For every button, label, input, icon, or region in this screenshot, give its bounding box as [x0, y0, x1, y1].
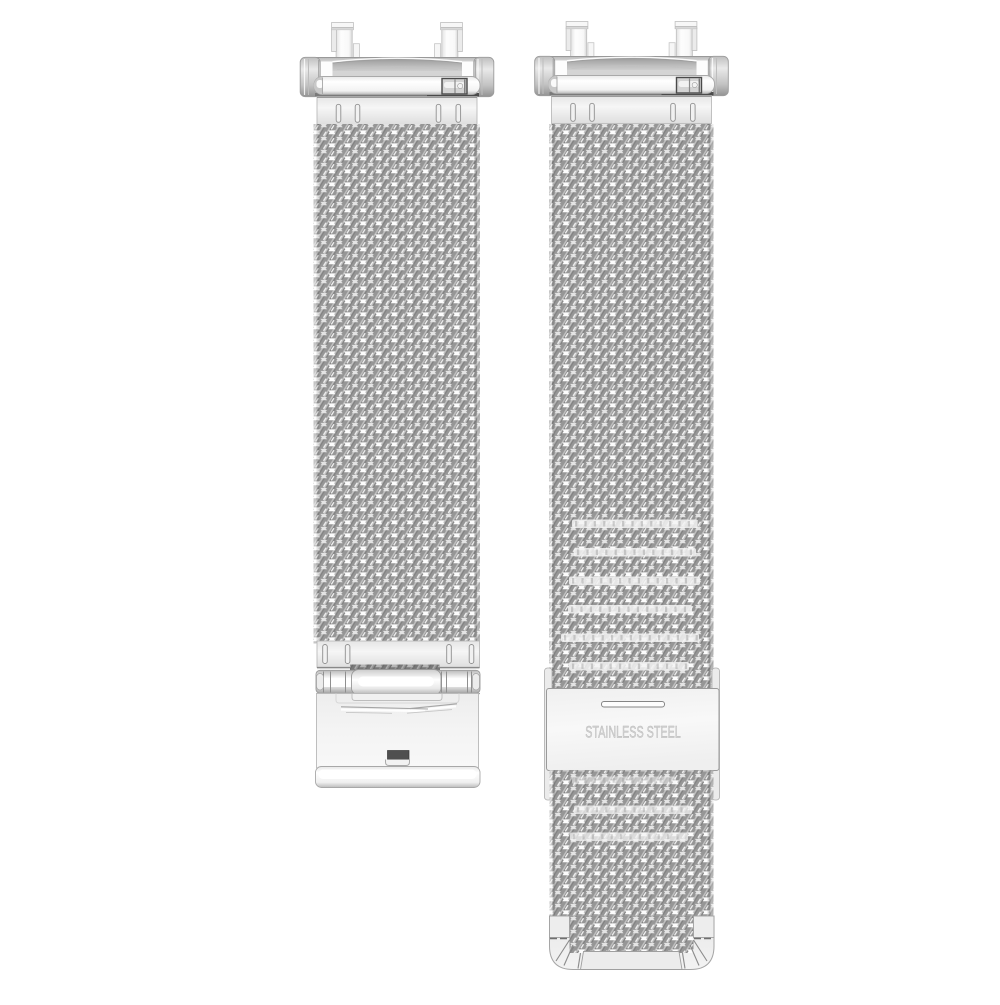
svg-text:STAINLESS STEEL: STAINLESS STEEL	[585, 722, 681, 741]
